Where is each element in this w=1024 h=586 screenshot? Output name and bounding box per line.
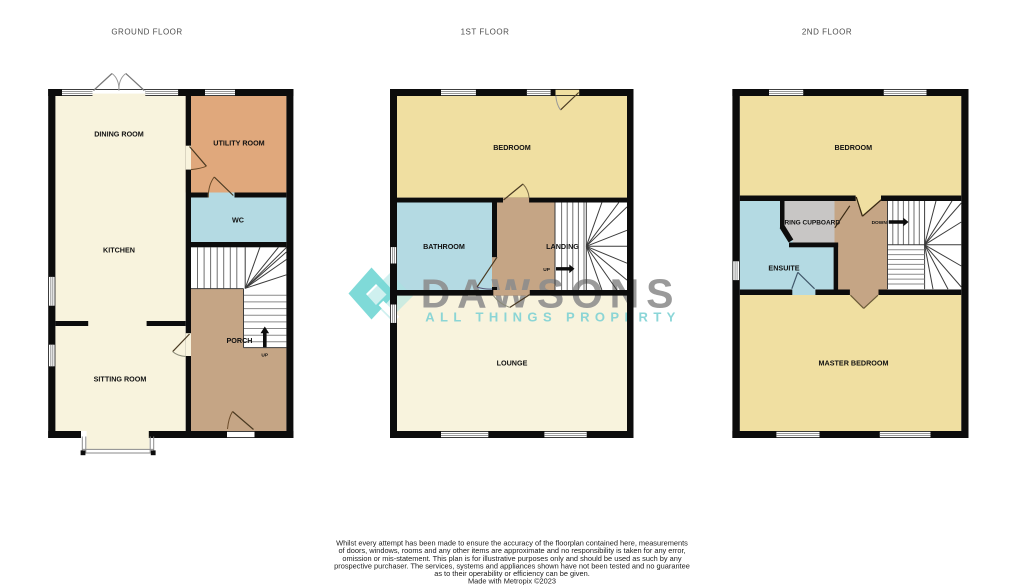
svg-text:UP: UP: [543, 267, 550, 273]
svg-text:KITCHEN: KITCHEN: [103, 246, 135, 255]
svg-text:LOUNGE: LOUNGE: [497, 359, 528, 368]
svg-text:BATHROOM: BATHROOM: [423, 242, 465, 251]
svg-text:Made with Metropix ©2023: Made with Metropix ©2023: [468, 577, 556, 586]
svg-text:LANDING: LANDING: [546, 242, 579, 251]
svg-text:ENSUITE: ENSUITE: [768, 264, 799, 273]
svg-text:BEDROOM: BEDROOM: [835, 143, 873, 152]
svg-text:PORCH: PORCH: [227, 336, 253, 345]
svg-text:ALL THINGS PROPERTY: ALL THINGS PROPERTY: [425, 310, 680, 325]
svg-text:SITTING ROOM: SITTING ROOM: [94, 375, 147, 384]
svg-text:DOWN: DOWN: [872, 220, 888, 226]
svg-text:2ND FLOOR: 2ND FLOOR: [802, 28, 852, 37]
svg-text:1ST FLOOR: 1ST FLOOR: [461, 28, 510, 37]
svg-text:MASTER BEDROOM: MASTER BEDROOM: [819, 359, 889, 368]
svg-text:GROUND FLOOR: GROUND FLOOR: [111, 28, 182, 37]
svg-text:UTILITY ROOM: UTILITY ROOM: [213, 139, 264, 148]
svg-text:UP: UP: [261, 353, 268, 359]
svg-text:DINING ROOM: DINING ROOM: [94, 130, 144, 139]
svg-text:WC: WC: [232, 216, 244, 225]
svg-text:BEDROOM: BEDROOM: [493, 143, 531, 152]
svg-text:AIRING CUPBOARD: AIRING CUPBOARD: [778, 220, 840, 227]
